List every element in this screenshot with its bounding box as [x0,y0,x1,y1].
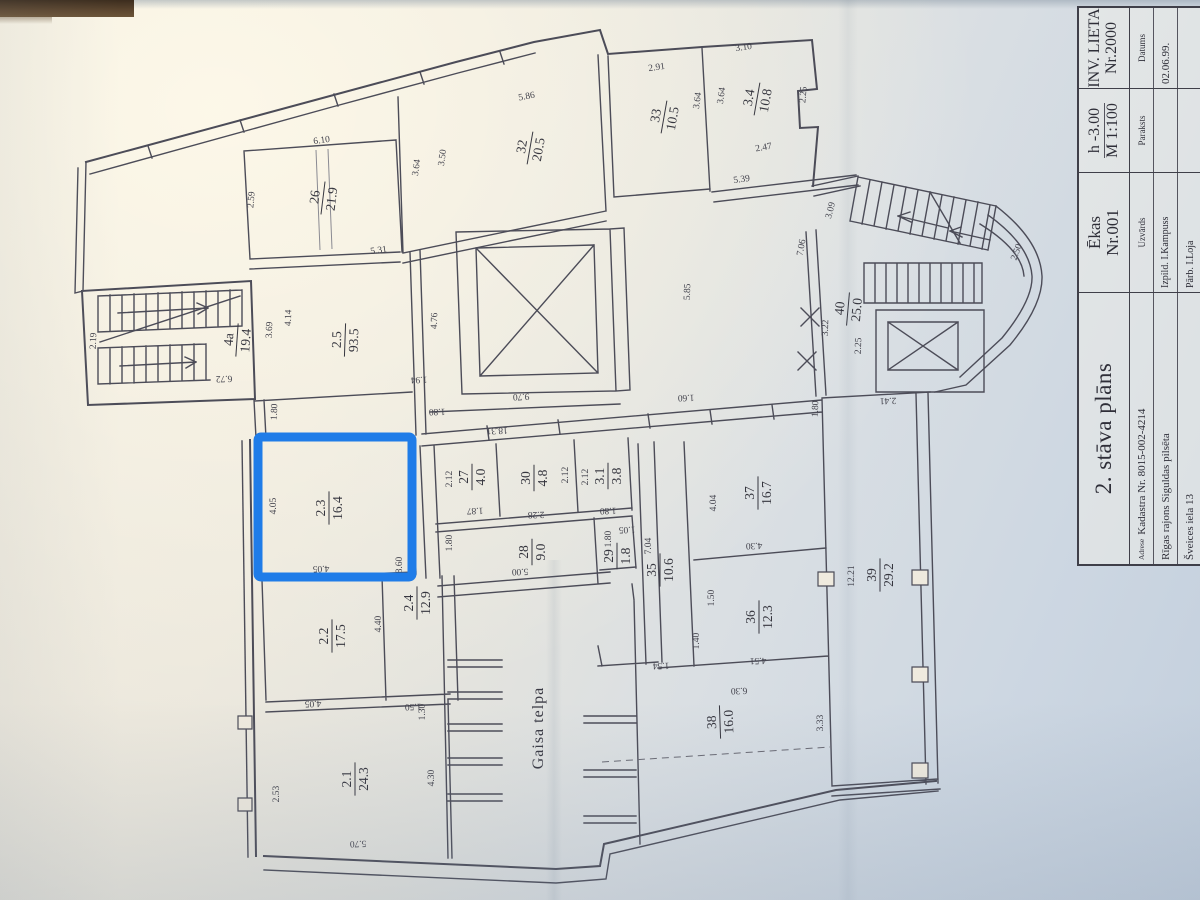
dimension-label: 3.50 [437,149,449,167]
svg-text:36: 36 [743,610,758,624]
dimension-label: 4.30 [427,769,437,786]
dimension-label: 5.86 [518,91,536,104]
dimension-label: 2.25 [798,86,809,104]
dimension-label: 2.59 [246,191,257,209]
room-label-32: 3220.5 [511,129,548,167]
window-cross-icon [798,308,819,370]
plan-title: 2. stāva plāns [1079,293,1129,564]
dimension-label: 1.30 [418,703,428,720]
dimension-label: 2.12 [561,466,571,483]
dimension-label: 1.05 [618,524,635,535]
room-label-4a: 4a19.4 [220,322,254,357]
svg-text:12.9: 12.9 [418,591,433,615]
dimension-label: 3.22 [821,319,832,336]
dimension-label: 4.05 [312,563,329,574]
scale-value: M 1:100 [1104,103,1122,158]
door-ticks [487,405,774,440]
inv-number: Nr.2000 [1104,22,1121,74]
dimension-label: 7.06 [796,238,809,256]
dimension-label: 9.70 [512,391,529,402]
dimension-label: 5.39 [733,174,751,186]
svg-text:21.9: 21.9 [323,186,341,212]
address-line3: Šveices iela 13 [1184,494,1196,560]
room-label-2.5: 2.593.5 [328,323,361,357]
dimension-label: 2.19 [89,332,100,349]
dimension-label: 1.80 [270,403,281,420]
dimension-label: 3.69 [265,321,276,338]
dimension-label: 5.31 [370,245,388,257]
title-block: 2. stāva plāns Adrese Kadastra Nr. 8015-… [1077,6,1200,566]
svg-text:39: 39 [864,568,879,582]
svg-text:3.4: 3.4 [740,88,758,107]
svg-text:10.5: 10.5 [663,105,682,131]
svg-text:37: 37 [742,486,757,500]
dimension-label: 1.60 [677,392,694,403]
parb-name: Pārb. I.Loja [1178,173,1200,292]
svg-text:26: 26 [306,189,323,204]
dimension-label: 4.05 [269,497,279,514]
dimension-label: 4.51 [749,655,766,666]
dimension-label: 4.14 [284,309,295,326]
svg-text:16.4: 16.4 [330,496,345,520]
datums-label: Datums [1130,8,1154,88]
svg-text:2.5: 2.5 [329,331,345,349]
address-line2: Rīgas rajons Siguldas pilsēta [1160,433,1172,560]
dimension-label: 3.09 [824,201,838,220]
room-label-2.3: 2.316.4 [313,491,345,524]
title-cell: 2. stāva plāns Adrese Kadastra Nr. 8015-… [1079,292,1200,564]
svg-text:17.5: 17.5 [333,624,348,648]
svg-text:38: 38 [704,715,719,729]
svg-text:12.3: 12.3 [760,605,775,629]
svg-text:24.3: 24.3 [356,767,371,791]
svg-text:2.2: 2.2 [316,628,331,645]
svg-text:10.8: 10.8 [756,87,775,113]
dimension-label: 4.76 [430,312,441,329]
room-label-36: 3612.3 [743,600,775,633]
dimension-label: 1.87 [466,505,483,516]
inv-lieta-label: INV. LIETA [1087,8,1104,87]
uzvards-label: Uzvārds [1130,173,1154,292]
dimension-label: 2.12 [445,470,455,487]
height-scale-cell: h -3.00 M 1:100 Paraksts [1079,88,1200,172]
svg-text:93.5: 93.5 [346,328,362,352]
svg-text:16.7: 16.7 [759,481,774,505]
adrese-label: Adrese [1137,539,1146,560]
room-label-30: 304.8 [518,465,550,491]
room-label-2.4: 2.412.9 [401,586,433,619]
svg-text:4a: 4a [221,333,237,347]
svg-text:33: 33 [647,107,664,123]
dimension-label: 2.91 [648,62,666,74]
interior-walls [238,48,940,858]
room-label-2.2: 2.217.5 [316,619,348,652]
dimension-label: 1.80 [445,534,455,551]
dimension-label: 5.85 [683,283,694,300]
building-cell: Ēkas Nr.001 Uzvārds Izpild. I.Kampuss Pā… [1079,172,1200,292]
svg-text:30: 30 [518,471,533,485]
dimension-label: 1.40 [692,632,702,649]
dashed-partition [602,747,830,762]
dimension-label: 4.30 [745,540,762,551]
dimension-label: 1.80 [428,406,445,417]
dimension-label: 3.10 [735,42,753,54]
svg-text:3.1: 3.1 [592,468,607,485]
svg-text:19.4: 19.4 [237,328,254,353]
svg-text:27: 27 [456,470,471,484]
svg-text:4.0: 4.0 [473,468,488,485]
svg-text:28: 28 [516,545,531,559]
dimension-label: 4.05 [304,698,321,709]
ekas-number: Nr.001 [1104,209,1122,256]
svg-text:29.2: 29.2 [881,563,896,587]
floor-plan-drawing: 2621.93220.53310.53.410.84a19.42.593.540… [0,0,1200,900]
dimension-label: 4.40 [374,615,384,632]
dimension-label: 5.00 [511,566,528,577]
svg-text:4.8: 4.8 [535,469,550,486]
dimension-label: 1.80 [604,530,614,547]
room-label-27: 274.0 [456,464,488,490]
datums-value: 02.06.99. [1160,43,1172,84]
elevator-shaft-right [876,310,984,392]
svg-text:10.6: 10.6 [661,558,676,582]
dimension-label: 18.31 [486,424,508,435]
room-label-38: 3816.0 [703,705,736,739]
dimension-label: 3.33 [816,714,826,731]
dimension-label: 6.30 [730,685,747,696]
dimension-label: 3.64 [692,92,704,110]
elevator-shaft-center [456,228,630,394]
svg-text:9.0: 9.0 [533,543,548,560]
dimension-label: 3.64 [411,159,423,177]
photo-of-floor-plan: 2621.93220.53310.53.410.84a19.42.593.540… [0,0,1200,900]
room-label-35: 3510.6 [644,553,676,586]
dimension-label: 2.53 [272,785,282,802]
dimension-label: 1.94 [410,374,427,385]
room-label-3.4: 3.410.8 [738,80,775,118]
room-label-3.1: 3.13.8 [592,463,624,489]
dimension-label: 4.04 [709,494,719,511]
paper-crease [546,560,562,900]
dimension-label: 6.72 [215,373,232,384]
svg-text:2.1: 2.1 [339,771,354,788]
dimension-label: 8.60 [395,556,405,573]
svg-text:2.4: 2.4 [401,594,416,611]
ekas-label: Ēkas [1086,216,1104,249]
svg-text:16.0: 16.0 [721,709,737,733]
dimension-label: 5.70 [349,838,366,849]
inventory-cell: INV. LIETA Nr.2000 Datums 02.06.99. [1079,8,1200,88]
dimension-label: 3.64 [716,87,728,105]
svg-text:2.3: 2.3 [313,499,328,516]
room-label-26: 2621.9 [305,180,341,217]
room-label-39: 3929.2 [864,558,896,591]
svg-text:29: 29 [601,549,616,563]
dimension-label: 2.50 [1010,243,1025,262]
dimension-label: 1.80 [811,400,822,417]
dimension-label: 2.12 [581,468,591,485]
outer-walls [75,30,938,883]
paraksts-label: Paraksts [1130,89,1154,172]
room-label-28: 289.0 [516,539,548,565]
svg-text:1.8: 1.8 [618,547,633,564]
height-value: h -3.00 [1087,108,1104,153]
svg-text:3.8: 3.8 [609,467,624,484]
room-label-37: 3716.7 [742,476,774,509]
dimension-label: 1.50 [707,589,717,606]
izpild-name: Izpild. I.Kampuss [1154,173,1178,292]
dimension-label: 1.54 [652,660,669,671]
paper-crease [838,0,858,900]
dimension-label: 2.47 [755,142,773,155]
dimension-label: 2.28 [527,509,544,520]
svg-text:32: 32 [513,139,530,155]
dimension-label: 1.80 [599,505,616,516]
curved-outer-wall [935,206,1042,392]
svg-text:20.5: 20.5 [529,136,548,162]
dimension-label: 7.04 [644,537,654,554]
room-label-33: 3310.5 [645,98,682,136]
svg-text:35: 35 [644,563,659,577]
gaisa-telpa-label: Gaisa telpa [530,687,547,770]
room-label-2.1: 2.124.3 [339,762,371,795]
kadastra-number: Kadastra Nr. 8015-002-4214 [1136,409,1148,535]
dimension-label: 2.41 [879,395,896,406]
